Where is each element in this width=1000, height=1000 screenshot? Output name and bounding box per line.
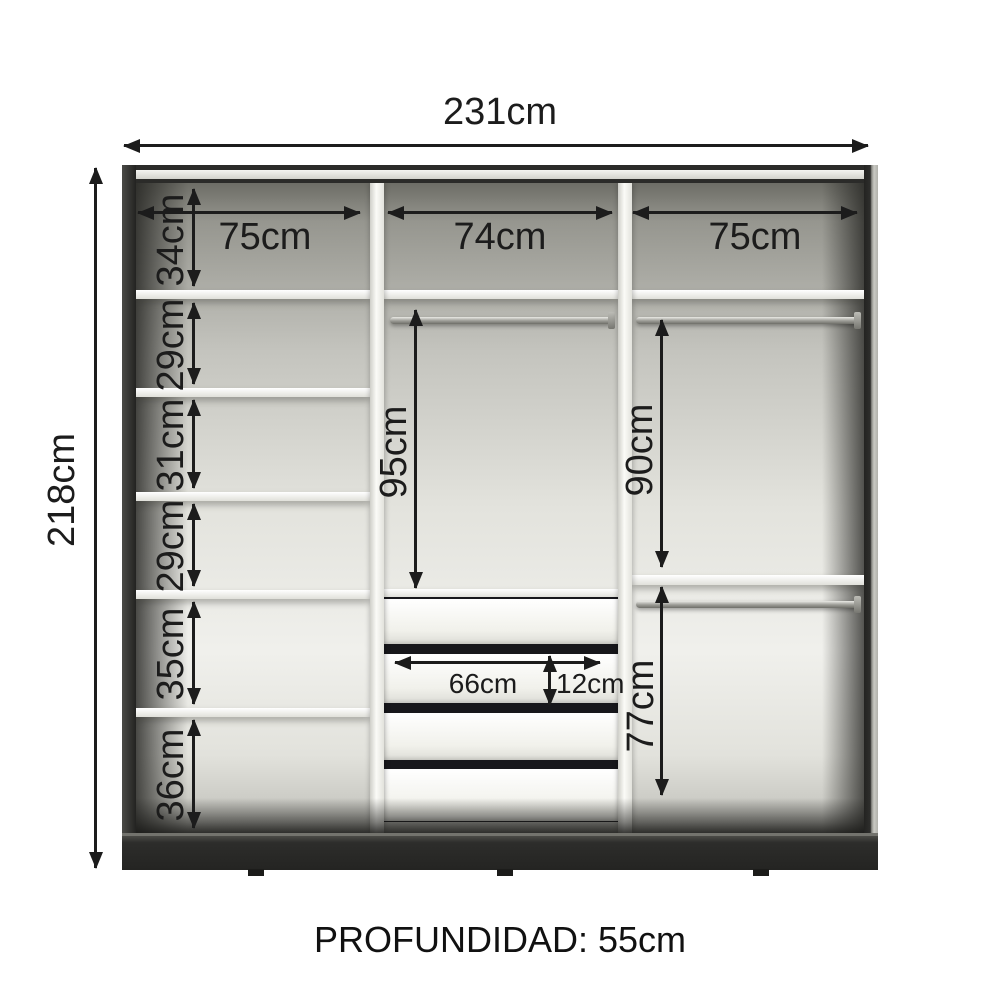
drawer-unit-top-panel [384, 589, 618, 597]
drawer-width-label: 66cm [449, 670, 517, 698]
interior-floor-shadow [136, 798, 864, 833]
drawer-height-label: 12cm [556, 670, 624, 698]
middle-top-shelf [384, 290, 618, 299]
left-column-width-label: 75cm [219, 218, 312, 256]
middle-column-width-arrow [388, 211, 612, 214]
middle-column-width-label: 74cm [454, 218, 547, 256]
middle-hanging-height-label: 95cm [375, 406, 413, 499]
drawer-width-arrow [395, 661, 600, 664]
drawer-3 [384, 713, 618, 760]
top-rail-strip [131, 170, 869, 179]
right-lower-hanging-rod [636, 601, 858, 608]
divider-left [370, 183, 384, 833]
foot-left [248, 869, 264, 876]
total-height-arrow [94, 168, 97, 868]
right-middle-shelf [632, 575, 864, 585]
left-section-1-label: 34cm [152, 194, 190, 287]
foot-right [753, 869, 769, 876]
left-shelf-5 [136, 708, 370, 717]
left-section-6-label: 36cm [152, 729, 190, 822]
total-width-arrow [124, 144, 868, 147]
left-section-2-label: 29cm [152, 299, 190, 392]
left-section-4-arrow [192, 504, 195, 586]
right-side-panel [864, 165, 878, 870]
drawer-1 [384, 599, 618, 644]
left-side-panel [122, 165, 136, 870]
right-top-shelf [632, 290, 864, 299]
wardrobe-dimension-diagram: 231cm 218cm 75cm 74cm 75cm 34cm 29cm 31c… [0, 0, 1000, 1000]
right-column-width-arrow [633, 211, 857, 214]
depth-label: PROFUNDIDAD: 55cm [314, 919, 686, 961]
drawer-unit [384, 597, 618, 822]
base-panel [122, 833, 878, 870]
middle-hanging-rod [390, 317, 612, 324]
left-section-3-label: 31cm [152, 399, 190, 492]
left-section-1-arrow [192, 189, 195, 286]
left-section-3-arrow [192, 400, 195, 488]
right-column-width-label: 75cm [709, 218, 802, 256]
left-section-5-arrow [192, 602, 195, 704]
left-section-6-arrow [192, 720, 195, 828]
right-upper-hanging-rod [636, 317, 858, 324]
foot-middle [497, 869, 513, 876]
right-upper-hanging-label: 90cm [621, 404, 659, 497]
total-width-label: 231cm [443, 93, 557, 131]
drawer-height-arrow [548, 656, 551, 705]
left-section-5-label: 35cm [152, 608, 190, 701]
interior-right-shadow [822, 183, 864, 833]
left-section-2-arrow [192, 303, 195, 384]
total-height-label: 218cm [43, 433, 81, 547]
left-section-4-label: 29cm [152, 500, 190, 593]
right-lower-hanging-label: 77cm [622, 660, 660, 753]
